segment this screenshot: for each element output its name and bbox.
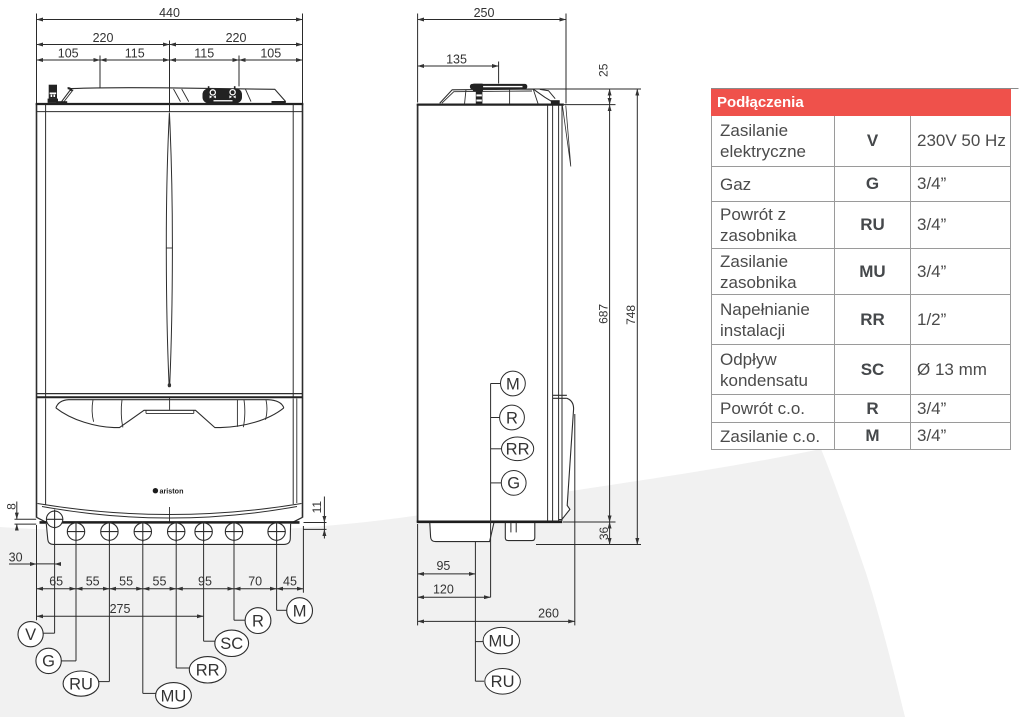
svg-text:RU: RU [69,675,93,693]
svg-text:260: 260 [538,607,559,621]
svg-text:275: 275 [110,602,131,616]
svg-text:V: V [25,626,36,644]
svg-text:RU: RU [491,673,515,691]
svg-text:55: 55 [86,574,100,588]
svg-text:SC: SC [220,635,243,653]
svg-text:105: 105 [260,46,281,60]
svg-text:105: 105 [58,46,79,60]
svg-text:65: 65 [49,574,63,588]
svg-text:95: 95 [198,574,212,588]
svg-text:115: 115 [125,46,145,60]
svg-text:G: G [42,653,55,671]
svg-text:45: 45 [283,574,297,588]
svg-text:250: 250 [474,6,495,20]
svg-text:220: 220 [226,31,247,45]
svg-text:220: 220 [93,31,114,45]
svg-text:M: M [506,375,520,393]
svg-text:M: M [293,602,307,620]
svg-text:R: R [506,409,518,427]
svg-text:687: 687 [597,304,611,324]
svg-text:55: 55 [153,574,167,588]
svg-text:135: 135 [446,53,467,67]
svg-text:25: 25 [597,63,611,77]
svg-text:95: 95 [436,559,450,573]
svg-text:MU: MU [488,633,514,651]
svg-text:11: 11 [310,501,324,514]
svg-text:748: 748 [624,305,638,325]
svg-text:RR: RR [506,441,530,459]
svg-text:8: 8 [4,503,18,510]
svg-text:55: 55 [119,574,133,588]
svg-text:MU: MU [161,687,187,705]
svg-text:70: 70 [248,574,262,588]
svg-text:RR: RR [196,662,220,680]
svg-text:G: G [507,475,520,493]
svg-text:440: 440 [159,6,180,20]
svg-text:120: 120 [433,583,454,597]
svg-text:ariston: ariston [160,486,184,495]
svg-text:R: R [252,612,264,630]
svg-text:115: 115 [194,46,214,60]
svg-text:30: 30 [9,551,23,565]
svg-text:36: 36 [597,527,611,541]
